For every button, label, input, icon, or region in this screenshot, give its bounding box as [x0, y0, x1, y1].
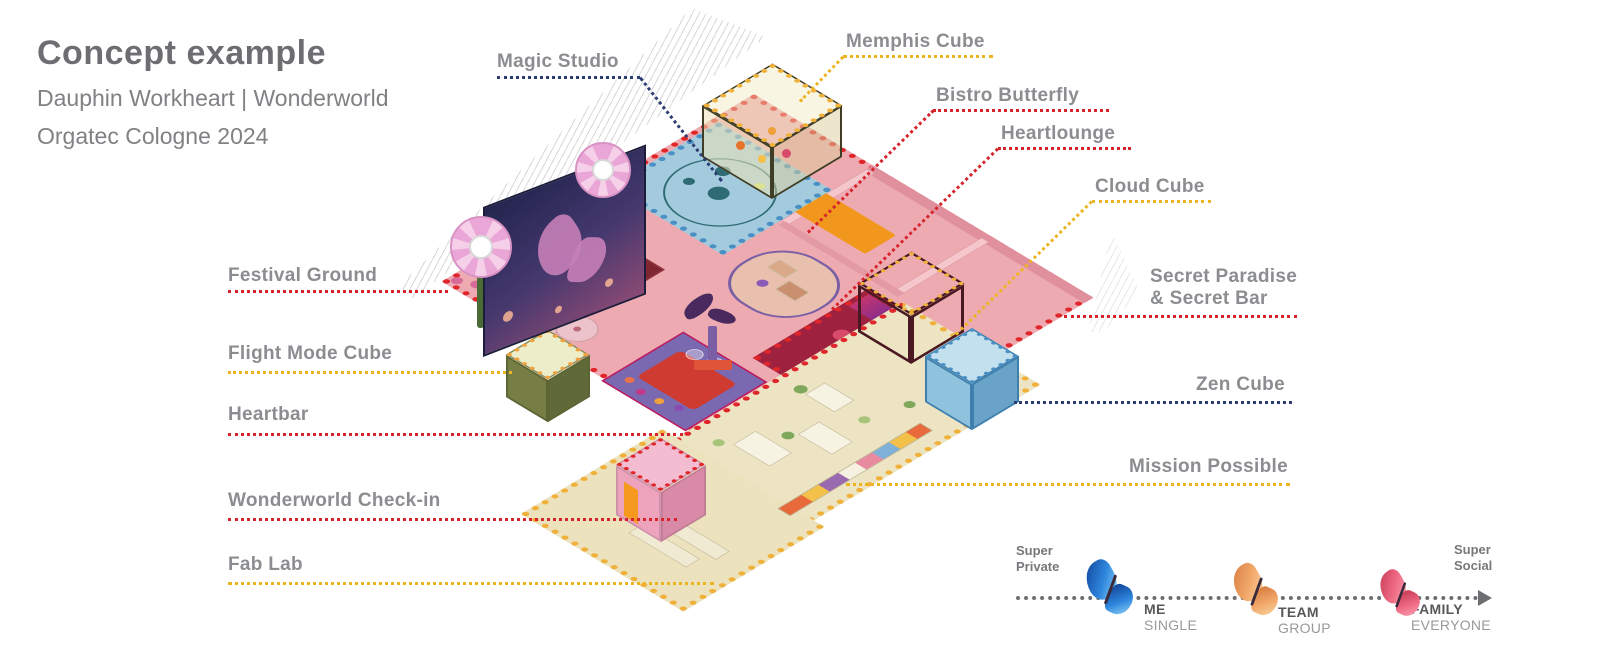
legend-stop-sublabel: GROUP [1278, 620, 1331, 636]
zone-label-bistro-butterfly: Bistro Butterfly [936, 85, 1079, 107]
leader-line [228, 290, 448, 293]
leader-line [228, 582, 714, 585]
pink-butterfly-icon [1378, 571, 1426, 624]
zone-label-magic-studio: Magic Studio [497, 51, 619, 73]
zone-label-wonderworld-checkin: Wonderworld Check-in [228, 490, 441, 512]
legend-stop-label: ME [1144, 601, 1197, 617]
legend-scale-start: Super Private [1016, 543, 1059, 575]
zen-cube-object [925, 328, 1019, 430]
leader-line [228, 518, 677, 521]
flower-lamp-icon [450, 216, 512, 278]
legend-stop-label: TEAM [1278, 604, 1331, 620]
leader-line [228, 433, 683, 436]
legend-scale-end: Super Social [1454, 542, 1488, 574]
page-title: Concept example [37, 34, 326, 73]
leader-line [998, 147, 1131, 150]
zone-label-festival-ground: Festival Ground [228, 265, 377, 287]
zone-label-mission-possible: Mission Possible [1129, 456, 1288, 478]
checkin-cube-object [616, 438, 706, 542]
leader-line [497, 76, 640, 79]
zone-label-heartlounge: Heartlounge [1001, 123, 1115, 145]
flower-lamp-icon [575, 142, 631, 198]
leader-line [843, 55, 993, 58]
zone-label-cloud-cube: Cloud Cube [1095, 176, 1205, 198]
legend-stop-team: TEAM GROUP [1278, 604, 1331, 636]
leader-line [228, 371, 512, 374]
butterfly-sculpture [678, 292, 748, 372]
leader-line [1064, 315, 1297, 318]
zone-label-fab-lab: Fab Lab [228, 554, 303, 576]
orange-butterfly-icon [1231, 565, 1284, 624]
leader-line [1014, 401, 1292, 404]
zone-label-memphis-cube: Memphis Cube [846, 31, 985, 53]
legend-stop-me: ME SINGLE [1144, 601, 1197, 633]
blue-butterfly-icon [1084, 561, 1140, 623]
zone-label-flight-mode-cube: Flight Mode Cube [228, 343, 392, 365]
page-subtitle: Dauphin Workheart | Wonderworld [37, 85, 389, 112]
concept-map-page: Concept example Dauphin Workheart | Wond… [0, 0, 1600, 667]
zone-label-heartbar: Heartbar [228, 404, 309, 426]
memphis-cube-object [702, 63, 842, 199]
leader-line [933, 109, 1109, 112]
zone-label-zen-cube: Zen Cube [1196, 374, 1285, 396]
leader-line [1092, 200, 1211, 203]
flight-mode-cube-object [506, 330, 590, 422]
page-subtitle-2: Orgatec Cologne 2024 [37, 123, 268, 150]
zone-label-secret-paradise: Secret Paradise & Secret Bar [1150, 266, 1297, 310]
legend-stop-sublabel: SINGLE [1144, 617, 1197, 633]
leader-line [846, 483, 1290, 486]
